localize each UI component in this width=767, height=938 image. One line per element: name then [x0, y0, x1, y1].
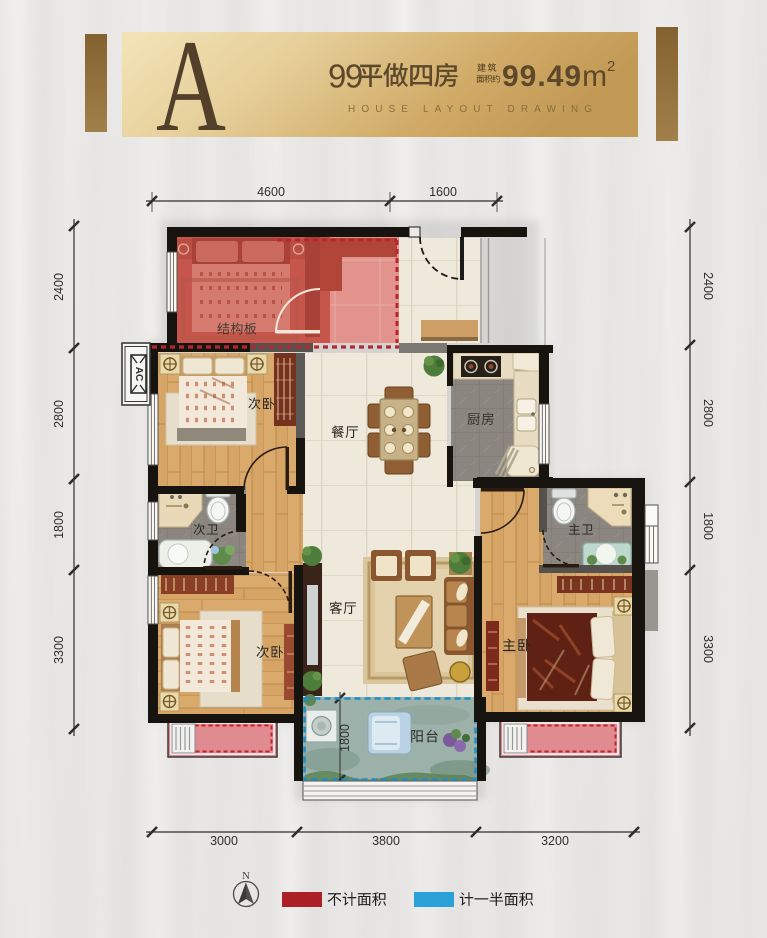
svg-text:99: 99	[328, 58, 362, 95]
svg-text:2400: 2400	[701, 272, 715, 300]
svg-text:2800: 2800	[52, 400, 66, 428]
svg-text:3300: 3300	[52, 636, 66, 664]
svg-text:1800: 1800	[701, 512, 715, 540]
svg-text:N: N	[242, 870, 250, 882]
svg-text:2400: 2400	[52, 273, 66, 301]
svg-text:3000: 3000	[210, 834, 238, 848]
svg-text:3300: 3300	[701, 635, 715, 663]
svg-text:99.49m: 99.49m	[502, 60, 608, 93]
svg-text:HOUSE LAYOUT DRAWING: HOUSE LAYOUT DRAWING	[348, 104, 598, 115]
svg-text:4600: 4600	[257, 185, 285, 199]
svg-text:1800: 1800	[338, 724, 352, 752]
svg-text:2800: 2800	[701, 399, 715, 427]
svg-text:3200: 3200	[541, 834, 569, 848]
svg-text:3800: 3800	[372, 834, 400, 848]
svg-text:1600: 1600	[429, 185, 457, 199]
svg-text:AC: AC	[133, 367, 144, 381]
svg-text:2: 2	[607, 58, 615, 75]
svg-text:A: A	[156, 12, 226, 159]
svg-text:1800: 1800	[52, 511, 66, 539]
